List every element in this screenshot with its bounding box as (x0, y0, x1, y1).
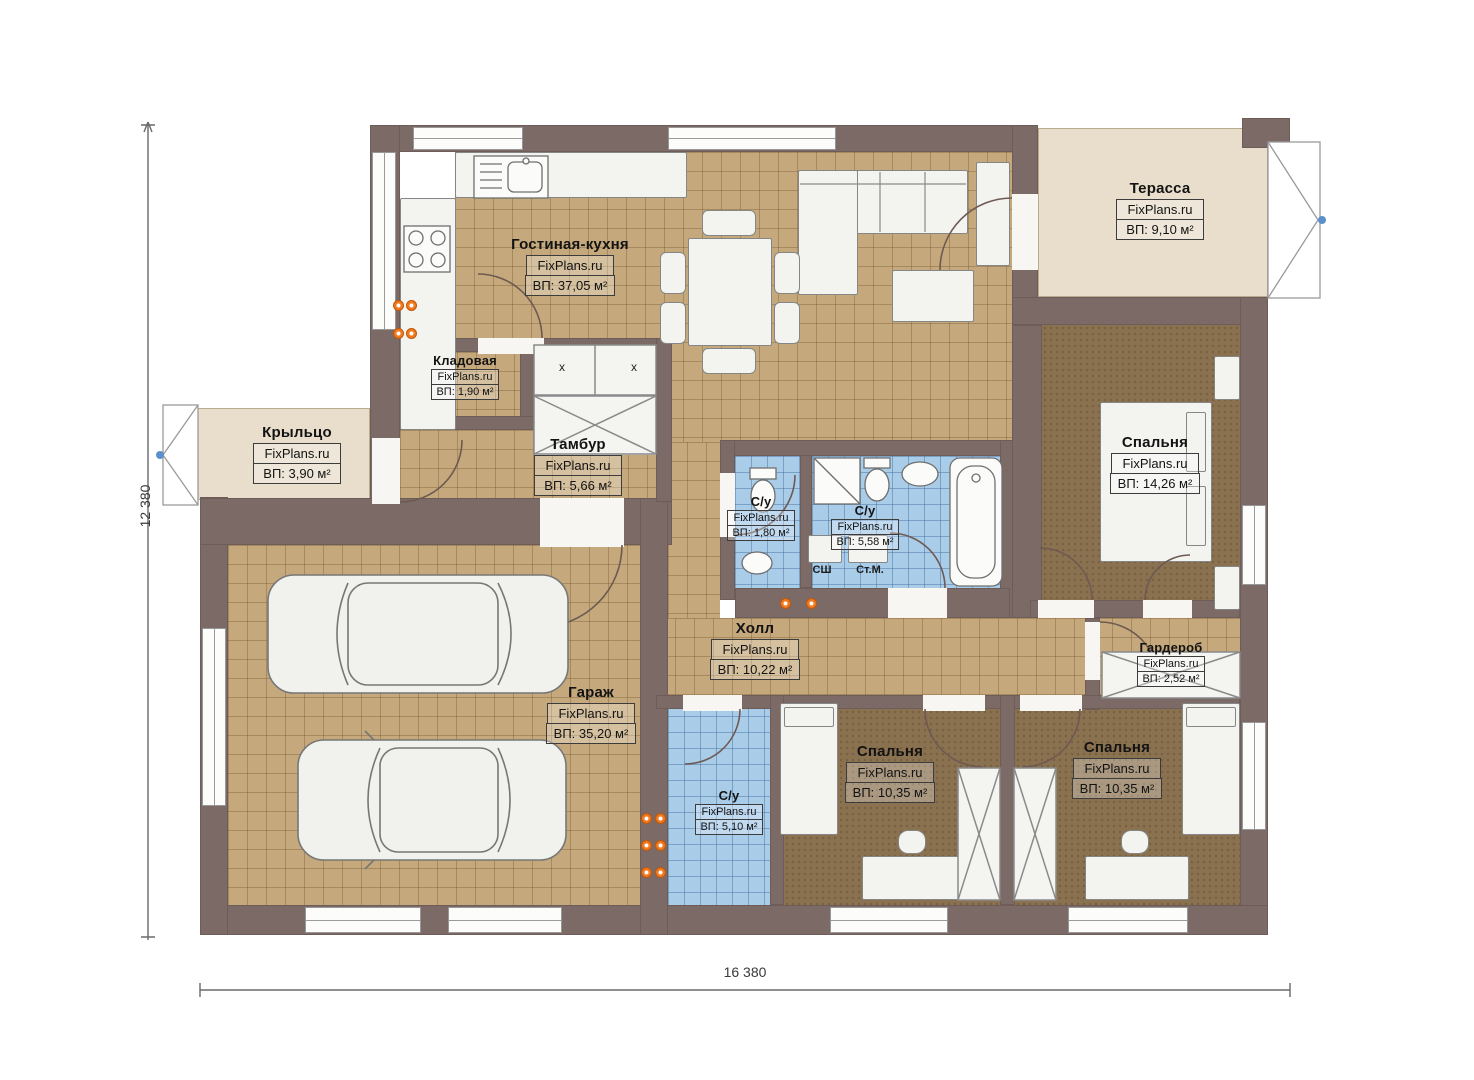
tv-bench (976, 162, 1010, 266)
room-label-terrace: Терасса FixPlans.ru ВП: 9,10 м² (1080, 180, 1240, 240)
wall-hall-top (735, 588, 1010, 618)
watermark: FixPlans.ru (1116, 199, 1204, 220)
door-opening-bath-lower (683, 695, 742, 711)
room-name: Гардероб (1098, 640, 1244, 655)
watermark: FixPlans.ru (253, 443, 341, 464)
door-opening-bedroom-left (923, 695, 985, 711)
dim-label-vertical: 12 380 (137, 461, 153, 551)
room-area: ВП: 10,35 м² (1072, 778, 1163, 799)
radiator-dot (780, 598, 791, 609)
wall-master-left (1012, 325, 1042, 618)
sofa-chaise (798, 170, 858, 295)
desk (862, 856, 966, 900)
room-label-bedroom-right: Спальня FixPlans.ru ВП: 10,35 м² (1043, 739, 1191, 799)
pillow (1186, 707, 1236, 727)
radiator-dot (806, 598, 817, 609)
wall-terrace-pier (1242, 118, 1290, 148)
room-name: С/у (671, 788, 787, 803)
room-area: ВП: 1,90 м² (431, 384, 499, 400)
radiator-dot (406, 300, 417, 311)
radiator-dot (641, 867, 652, 878)
door-opening-bedroom-right (1020, 695, 1082, 711)
room-name: Гараж (518, 684, 664, 701)
room-name: С/у (810, 503, 920, 518)
room-area: ВП: 2,52 м² (1137, 671, 1205, 687)
room-name: Холл (692, 620, 818, 637)
window (202, 628, 226, 806)
nightstand (1214, 356, 1240, 400)
radiator-dot (655, 813, 666, 824)
dining-chair (660, 302, 686, 344)
watermark: FixPlans.ru (831, 519, 899, 535)
room-label-pantry: Кладовая FixPlans.ru ВП: 1,90 м² (402, 353, 528, 400)
window (448, 907, 562, 933)
door-opening-master-1 (1038, 600, 1094, 618)
room-label-porch: Крыльцо FixPlans.ru ВП: 3,90 м² (225, 424, 369, 484)
watermark: FixPlans.ru (711, 639, 799, 660)
closet-mark: х (552, 360, 572, 374)
room-name: Терасса (1080, 180, 1240, 197)
room-label-hall: Холл FixPlans.ru ВП: 10,22 м² (692, 620, 818, 680)
room-area: ВП: 1,80 м² (727, 525, 795, 541)
nightstand (1214, 566, 1240, 610)
watermark: FixPlans.ru (547, 703, 635, 724)
door-opening-terrace (1012, 194, 1038, 270)
room-label-living-kitchen: Гостиная-кухня FixPlans.ru ВП: 37,05 м² (480, 236, 660, 296)
wall-bath-top (720, 440, 1015, 456)
wall-closet-right (656, 338, 672, 502)
door-opening-garage (540, 498, 624, 547)
terrace-stairs (1268, 142, 1320, 298)
radiator-dot (641, 840, 652, 851)
room-area: ВП: 10,22 м² (710, 659, 801, 680)
room-label-bedroom-master: Спальня FixPlans.ru ВП: 14,26 м² (1082, 434, 1228, 494)
window (668, 127, 836, 150)
desk-chair (1121, 830, 1149, 854)
room-area: ВП: 3,90 м² (253, 463, 341, 484)
kitchen-counter-top (455, 152, 687, 198)
watermark: FixPlans.ru (534, 455, 622, 476)
dim-label-horizontal: 16 380 (698, 964, 792, 980)
dining-chair (774, 302, 800, 344)
room-label-bathroom-main: С/у FixPlans.ru ВП: 5,58 м² (810, 503, 920, 550)
room-area: ВП: 37,05 м² (525, 275, 616, 296)
watermark: FixPlans.ru (1137, 656, 1205, 672)
stairs-arrow (1268, 142, 1318, 298)
room-name: Спальня (1043, 739, 1191, 756)
dining-table (688, 238, 772, 346)
stairs-arrow (163, 405, 198, 505)
room-area: ВП: 5,66 м² (534, 475, 622, 496)
room-label-garage: Гараж FixPlans.ru ВП: 35,20 м² (518, 684, 664, 744)
window (830, 907, 948, 933)
room-name: Кладовая (402, 353, 528, 368)
watermark: FixPlans.ru (846, 762, 934, 783)
room-area: ВП: 35,20 м² (546, 723, 637, 744)
watermark: FixPlans.ru (1073, 758, 1161, 779)
room-area: ВП: 9,10 м² (1116, 219, 1204, 240)
radiator-dot (393, 328, 404, 339)
radiator-dot (406, 328, 417, 339)
watermark: FixPlans.ru (727, 510, 795, 526)
porch-stairs (163, 405, 198, 505)
washer-label: Ст.М. (842, 564, 898, 576)
room-name: С/у (714, 494, 808, 509)
dining-chair (702, 210, 756, 236)
watermark: FixPlans.ru (431, 369, 499, 385)
watermark: FixPlans.ru (526, 255, 614, 276)
desk (1085, 856, 1189, 900)
window (305, 907, 421, 933)
dryer-label: СШ (800, 564, 844, 576)
closet-mark: х (624, 360, 644, 374)
window (1242, 505, 1266, 585)
room-area: ВП: 5,58 м² (831, 534, 899, 550)
room-name: Гостиная-кухня (480, 236, 660, 253)
floor-plan: СШ Ст.М. х х Терасса FixPlans.ru ВП: 9,1… (0, 0, 1474, 1080)
window (1068, 907, 1188, 933)
pillow (1186, 486, 1206, 546)
room-label-bathroom-small: С/у FixPlans.ru ВП: 1,80 м² (714, 494, 808, 541)
room-area: ВП: 10,35 м² (845, 782, 936, 803)
wall-bedroom-divider (1000, 695, 1015, 905)
radiator-dot (655, 867, 666, 878)
window (1242, 722, 1266, 830)
dining-chair (774, 252, 800, 294)
radiator-dot (641, 813, 652, 824)
corridor-floor (668, 442, 720, 618)
door-opening-bath-main (888, 588, 947, 618)
room-label-wardrobe: Гардероб FixPlans.ru ВП: 2,52 м² (1098, 640, 1244, 687)
room-area: ВП: 5,10 м² (695, 819, 763, 835)
door-opening-kitchen (478, 338, 544, 354)
coffee-table (892, 270, 974, 322)
entry-marker (1318, 216, 1326, 224)
radiator-dot (393, 300, 404, 311)
room-name: Спальня (816, 743, 964, 760)
dim-ticks (200, 983, 1290, 997)
entry-marker (156, 451, 164, 459)
dining-chair (660, 252, 686, 294)
room-name: Крыльцо (225, 424, 369, 441)
room-area: ВП: 14,26 м² (1110, 473, 1201, 494)
window (413, 127, 523, 150)
door-opening-master-2 (1143, 600, 1192, 618)
pillow (784, 707, 834, 727)
watermark: FixPlans.ru (695, 804, 763, 820)
wall-right (1240, 297, 1268, 935)
room-label-bathroom-lower: С/у FixPlans.ru ВП: 5,10 м² (671, 788, 787, 835)
desk-chair (898, 830, 926, 854)
dining-chair (702, 348, 756, 374)
door-opening-porch (372, 438, 400, 504)
room-label-bedroom-left: Спальня FixPlans.ru ВП: 10,35 м² (816, 743, 964, 803)
room-label-vestibule: Тамбур FixPlans.ru ВП: 5,66 м² (505, 436, 651, 496)
wall-terrace-bottom (1012, 297, 1268, 325)
watermark: FixPlans.ru (1111, 453, 1199, 474)
room-name: Тамбур (505, 436, 651, 453)
room-name: Спальня (1082, 434, 1228, 451)
radiator-dot (655, 840, 666, 851)
